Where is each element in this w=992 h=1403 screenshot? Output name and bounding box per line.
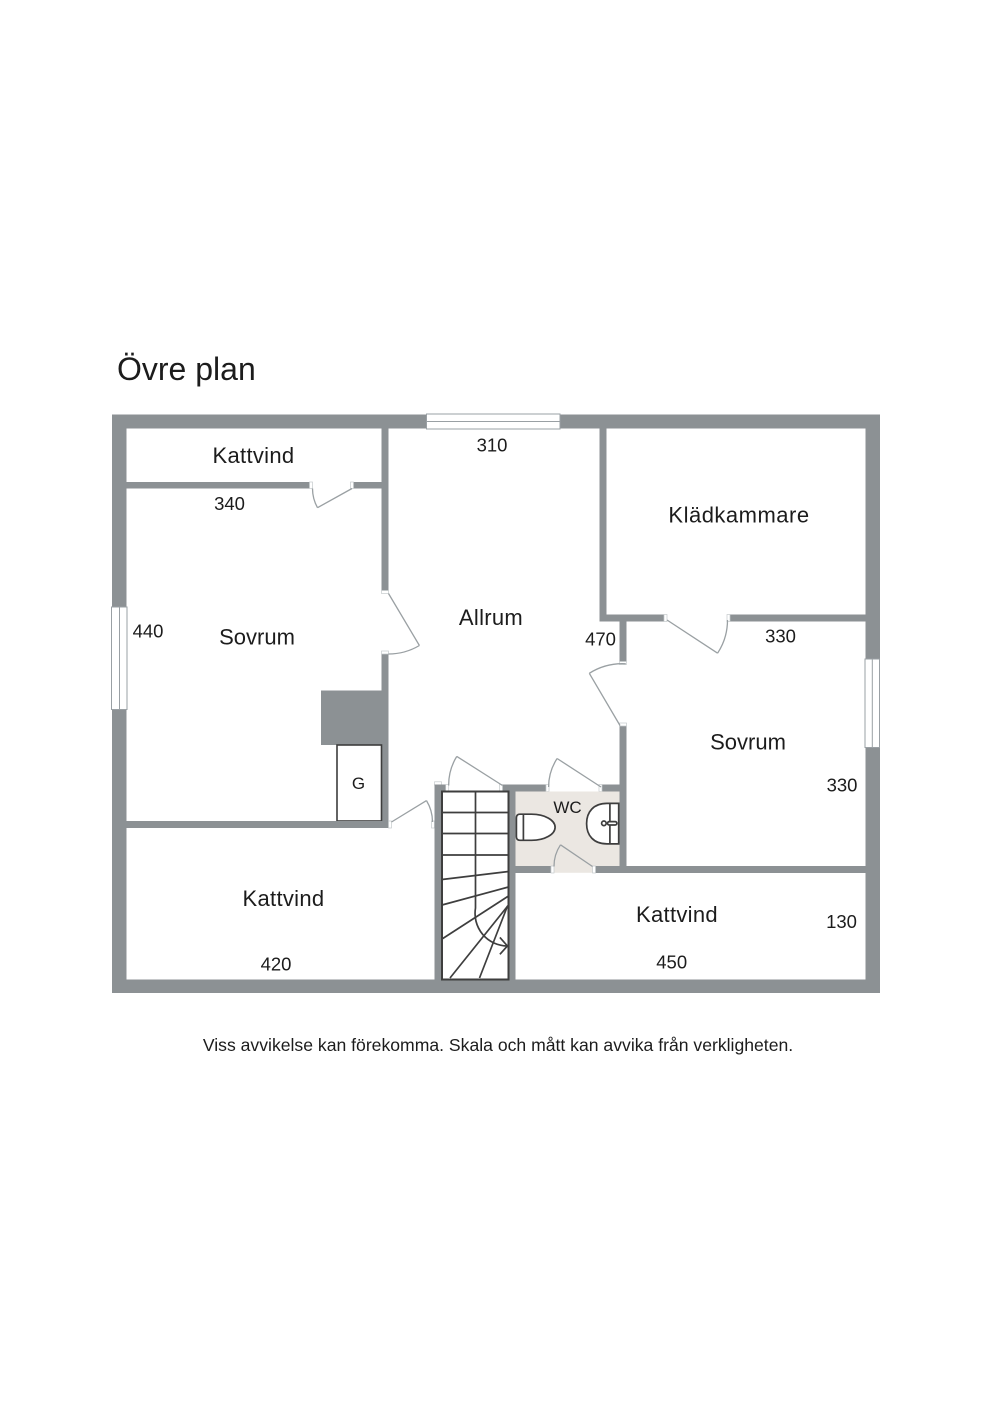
svg-text:Kattvind: Kattvind <box>213 443 295 468</box>
svg-text:310: 310 <box>477 435 508 456</box>
svg-text:330: 330 <box>827 775 858 796</box>
svg-text:Övre plan: Övre plan <box>117 351 256 387</box>
svg-text:WC: WC <box>553 798 581 817</box>
svg-text:340: 340 <box>214 493 245 514</box>
svg-text:Kattvind: Kattvind <box>243 886 325 911</box>
svg-text:G: G <box>352 774 365 793</box>
svg-text:Viss avvikelse kan förekomma.: Viss avvikelse kan förekomma. Skala och … <box>203 1035 793 1055</box>
svg-text:450: 450 <box>656 952 687 973</box>
svg-text:Kattvind: Kattvind <box>636 902 718 927</box>
svg-text:Klädkammare: Klädkammare <box>668 503 809 528</box>
svg-text:Allrum: Allrum <box>459 605 523 630</box>
svg-text:330: 330 <box>765 626 796 647</box>
svg-text:130: 130 <box>826 911 857 932</box>
svg-text:Sovrum: Sovrum <box>219 625 295 650</box>
svg-text:440: 440 <box>133 621 164 642</box>
svg-text:420: 420 <box>261 954 292 975</box>
svg-text:Sovrum: Sovrum <box>710 730 786 755</box>
svg-text:470: 470 <box>585 629 616 650</box>
